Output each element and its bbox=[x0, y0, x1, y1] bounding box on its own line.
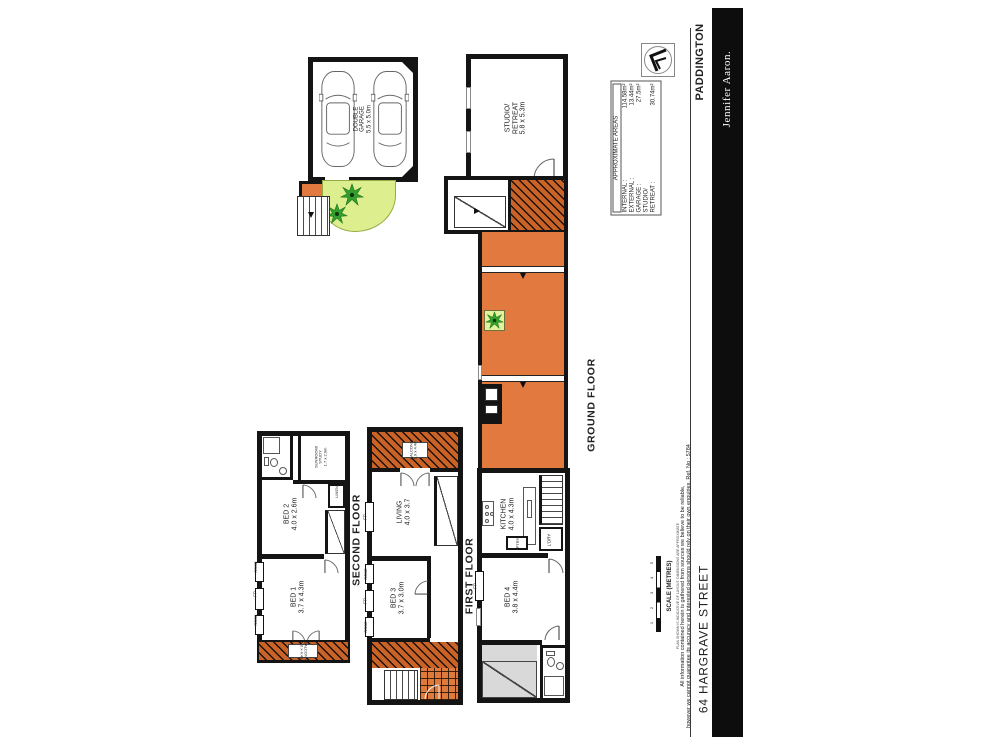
room-name: BED 3 bbox=[390, 582, 398, 615]
scale-tick: 1 bbox=[650, 622, 654, 624]
shower bbox=[544, 676, 564, 696]
room-name: BED 1 bbox=[290, 581, 298, 614]
area-label: STUDIO/ bbox=[644, 188, 651, 212]
label-pantry: PTRY bbox=[516, 538, 520, 549]
stove bbox=[482, 501, 494, 526]
entry-hall-stairs bbox=[482, 661, 537, 698]
room-dims: 1.0 x 4.4m bbox=[299, 641, 303, 660]
room-label-bed4: BED 4 3.8 x 4.4m bbox=[504, 581, 519, 614]
terrace-stairs bbox=[384, 670, 418, 700]
plant-icon bbox=[485, 311, 504, 330]
car-icon bbox=[371, 67, 409, 171]
floor-label-second: SECOND FLOOR bbox=[351, 494, 362, 586]
first-terrace bbox=[372, 642, 458, 668]
second-floor-stairs bbox=[325, 510, 345, 554]
area-label: EXTERNAL : bbox=[630, 178, 637, 213]
gate-arrow bbox=[520, 273, 526, 279]
room-dims: 3.7 x 4.3m bbox=[298, 581, 306, 614]
ground-bathroom bbox=[540, 645, 565, 698]
room-dims: 1.7 x 2.9m bbox=[323, 446, 327, 468]
hatched-court bbox=[511, 180, 564, 230]
room-name: BED 4 bbox=[504, 581, 512, 614]
room-name: RETREAT bbox=[512, 102, 520, 135]
area-value: 114.58m² bbox=[623, 84, 630, 109]
floor-label-first: FIRST FLOOR bbox=[464, 538, 475, 615]
room-label-bed1: BED 1 3.7 x 4.3m bbox=[290, 581, 305, 614]
room-label-kitchen: KITCHEN 4.0 x 4.3m bbox=[500, 498, 515, 531]
room-name: KITCHEN bbox=[500, 498, 508, 531]
room-label-studio: STUDIO/ RETREAT 5.8 x 5.3m bbox=[505, 102, 528, 135]
agency-name: Jennifer Aaron. bbox=[722, 51, 734, 128]
scale-tick: 5 bbox=[650, 562, 654, 564]
room-dims: 3.8 x 4.4m bbox=[512, 581, 520, 614]
scale-tick: 2 bbox=[650, 607, 654, 609]
room-dims: 1.9 x 4.4m bbox=[414, 440, 418, 459]
label-robe: ROBE bbox=[254, 614, 258, 625]
room-name: BED 2 bbox=[283, 498, 291, 531]
second-bathroom bbox=[262, 436, 293, 480]
room-label-bed3: BED 3 3.7 x 3.0m bbox=[390, 582, 405, 615]
floor-label-ground: GROUND FLOOR bbox=[586, 358, 597, 452]
stair-direction-arrow bbox=[308, 212, 314, 218]
shower bbox=[263, 437, 280, 454]
room-dims: 5.5 x 5.0m bbox=[366, 105, 372, 133]
yard-gate bbox=[482, 266, 564, 273]
wc bbox=[270, 458, 278, 467]
label-robe: ROBE bbox=[254, 561, 258, 572]
room-label-balcony-second: BALCONY 1.0 x 4.4m bbox=[299, 641, 308, 660]
door-arc bbox=[544, 625, 560, 641]
disclaimer: All information contained herein is gath… bbox=[681, 444, 693, 728]
room-name: GARAGE bbox=[360, 105, 366, 133]
room-label-balcony-first: BALCONY 1.9 x 4.4m bbox=[410, 440, 419, 459]
property-address: 64 HARGRAVE STREET bbox=[698, 565, 711, 713]
area-label: INTERNAL : bbox=[623, 180, 630, 213]
room-label-bed2: BED 2 4.0 x 2.6m bbox=[283, 498, 298, 531]
floorplan-canvas: Jennifer Aaron. PADDINGTON 64 HARGRAVE S… bbox=[0, 0, 1000, 750]
room-dims: 5.8 x 5.3m bbox=[520, 102, 528, 135]
areas-box: APPROXIMATE AREAS INTERNAL :114.58m² EXT… bbox=[611, 81, 662, 216]
door-arc bbox=[414, 580, 429, 595]
basin bbox=[279, 467, 287, 475]
wc bbox=[547, 657, 555, 667]
area-value: 27.5m² bbox=[637, 84, 644, 103]
label-fp: FP bbox=[364, 598, 369, 604]
rear-yard bbox=[478, 232, 568, 470]
scale-tick: 3 bbox=[650, 592, 654, 594]
room-label-garage: DOUBLE GARAGE 5.5 x 5.0m bbox=[353, 105, 372, 133]
label-fp: FP bbox=[254, 591, 259, 597]
suburb-title: PADDINGTON bbox=[695, 24, 707, 101]
door-arc bbox=[548, 558, 564, 574]
compass-icon bbox=[641, 43, 675, 77]
label-linen: LINEN bbox=[335, 486, 339, 498]
room-name: STUDIO/ bbox=[505, 102, 513, 135]
gate-arrow bbox=[520, 382, 526, 388]
label-laundry: L'DRY bbox=[548, 534, 553, 547]
door-arc bbox=[400, 472, 415, 487]
scale-tick: 4 bbox=[650, 577, 654, 579]
door-arc bbox=[415, 472, 430, 487]
car-icon bbox=[319, 67, 357, 171]
door-arc bbox=[302, 484, 317, 499]
area-label: RETREAT : bbox=[651, 182, 658, 213]
yard-gate bbox=[482, 375, 564, 382]
label-robe: ROBE bbox=[364, 621, 368, 632]
wc-cistern bbox=[264, 457, 269, 466]
bbq-unit bbox=[482, 384, 502, 424]
ground-stairs bbox=[539, 475, 563, 525]
area-value: 30.74m² bbox=[651, 84, 658, 106]
door-arc bbox=[424, 684, 440, 700]
planter-tile bbox=[484, 310, 505, 331]
room-label-living: LIVING 4.0 x 3.7 bbox=[396, 499, 411, 526]
disclaimer-line: however we cannot guarantee its accuracy… bbox=[687, 444, 693, 728]
door-arc bbox=[324, 559, 339, 574]
room-dims: 4.0 x 4.3m bbox=[508, 498, 516, 531]
area-label: GARAGE : bbox=[637, 183, 644, 212]
studio-entry-block bbox=[444, 176, 568, 234]
first-floor-stairs bbox=[434, 476, 458, 546]
room-dims: 3.7 x 3.0m bbox=[398, 582, 406, 615]
scale-bar bbox=[656, 556, 661, 632]
room-dims: 4.0 x 2.6m bbox=[291, 498, 299, 531]
second-floor bbox=[257, 431, 350, 663]
stair-direction-arrow bbox=[474, 208, 480, 214]
room-label-sunroom: SUNROOM/ STUDY 1.7 x 2.9m bbox=[315, 446, 328, 468]
entry-stairs bbox=[454, 196, 506, 228]
basin bbox=[556, 662, 564, 670]
first-floor bbox=[367, 427, 463, 705]
wc-cistern bbox=[546, 651, 555, 656]
label-robe: ROBE bbox=[364, 568, 368, 579]
room-name: LIVING bbox=[396, 499, 404, 526]
house-ground-floor bbox=[477, 468, 570, 703]
areas-title: APPROXIMATE AREAS bbox=[613, 84, 622, 213]
scale-label: SCALE (METRES) bbox=[667, 561, 673, 612]
area-value: 13.44m² bbox=[630, 84, 637, 106]
room-dims: 4.0 x 3.7 bbox=[404, 499, 412, 526]
label-fp: FP bbox=[364, 514, 369, 520]
